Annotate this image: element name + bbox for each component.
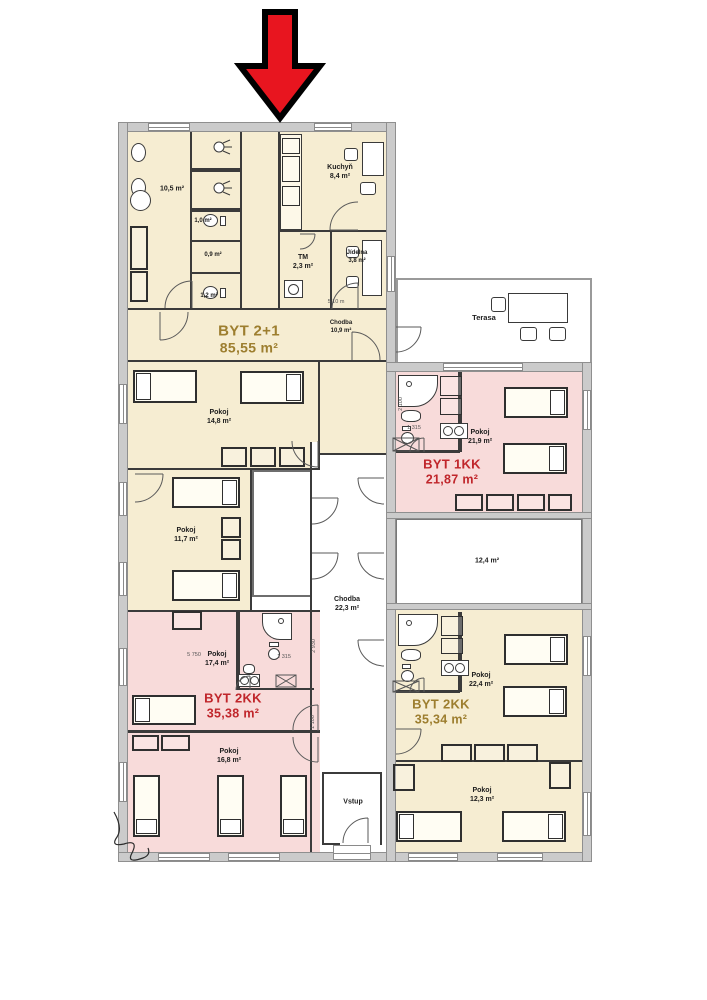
burner-icon: [443, 426, 453, 436]
room-label-tm: TM2,3 m²: [293, 253, 313, 271]
shower-drain-icon: [406, 381, 412, 387]
dimension-label: 1 315: [407, 425, 421, 431]
toilet-tank-icon: [269, 642, 279, 647]
chair-icon: [520, 327, 537, 341]
burner-icon: [455, 663, 465, 673]
window-icon: [408, 853, 458, 861]
bed-icon: [132, 695, 196, 725]
dimension-label: 1 315: [277, 654, 291, 660]
sink-icon: [131, 143, 146, 162]
wardrobe-icon: [507, 744, 538, 762]
room-label-jidelna: Jídelna3,8 m²: [347, 250, 368, 266]
window-icon: [119, 384, 127, 424]
room-label-kuchyn: Kuchyň8,4 m²: [327, 163, 353, 181]
wardrobe-icon: [517, 494, 545, 511]
room-label-terasa: Terasa: [472, 313, 496, 323]
room-label-sat09: 0,9 m²: [204, 252, 221, 260]
shower-drain-icon: [406, 620, 412, 626]
room-label-pokoj174: Pokoj17,4 m²: [205, 650, 229, 668]
terrace-table-icon: [508, 293, 568, 323]
toilet-icon: [401, 670, 414, 682]
room-label-pokoj148: Pokoj14,8 m²: [207, 408, 231, 426]
room-label-pokoj168: Pokoj16,8 m²: [217, 747, 241, 765]
bed-icon: [504, 634, 568, 665]
bed-icon: [217, 775, 244, 837]
bed-icon: [240, 371, 304, 404]
window-icon: [387, 256, 395, 292]
sink-icon: [401, 649, 421, 661]
chair-icon: [360, 182, 376, 195]
apartment-label-byt1kk: BYT 1KK21,87 m²: [423, 457, 481, 486]
wardrobe-icon: [221, 517, 241, 538]
wardrobe-icon: [221, 539, 241, 560]
bed-icon: [396, 811, 462, 842]
entrance-door-icon: [333, 845, 371, 860]
window-icon: [583, 792, 591, 836]
bed-icon: [503, 686, 567, 717]
bed-icon: [172, 477, 240, 508]
cabinet-icon: [130, 271, 148, 302]
window-icon: [119, 762, 127, 802]
red-arrow-icon: [232, 8, 332, 126]
appliance-icon: [282, 138, 300, 154]
dimension-label: 2 100: [398, 397, 404, 411]
chair-icon: [491, 297, 506, 312]
bed-icon: [504, 387, 568, 418]
sink-icon: [243, 664, 255, 674]
dimension-label: 5,10 m: [328, 299, 345, 305]
window-icon: [228, 853, 280, 861]
dimension-label: 5 750: [187, 652, 201, 658]
appliance-icon: [282, 156, 300, 182]
room-label-pokoj224: Pokoj22,4 m²: [469, 671, 493, 689]
wardrobe-icon: [132, 735, 159, 751]
bed-icon: [502, 811, 566, 842]
shower-drain-icon: [278, 618, 284, 624]
closet-block-floor: [320, 362, 386, 453]
vstup-floor: [322, 772, 382, 845]
wall-center: [386, 122, 396, 862]
wardrobe-icon: [279, 447, 305, 467]
dimension-label: 1 100: [310, 715, 316, 729]
room-label-vstup: Vstup: [343, 797, 362, 806]
bed-icon: [503, 443, 567, 474]
basin-icon: [240, 676, 249, 685]
appliance-icon: [441, 638, 463, 654]
wardrobe-icon: [474, 744, 505, 762]
window-icon: [583, 636, 591, 676]
wall-rightwing-right: [582, 362, 592, 862]
window-icon: [497, 853, 543, 861]
window-icon: [443, 363, 523, 371]
sink-icon: [401, 410, 421, 422]
bed-icon: [133, 775, 160, 837]
toilet-tank-icon: [402, 664, 411, 669]
burner-icon: [454, 426, 464, 436]
window-icon: [119, 562, 127, 596]
room-label-bath105: 10,5 m²: [160, 184, 184, 193]
bed-icon: [133, 370, 197, 403]
apartment-label-byt21: BYT 2+185,55 m²: [218, 322, 280, 355]
appliance-icon: [440, 376, 462, 396]
dining-table-icon: [362, 240, 382, 296]
window-icon: [148, 123, 190, 131]
wardrobe-icon: [486, 494, 514, 511]
closet-icon: [393, 764, 415, 791]
void-room-floor: [252, 470, 310, 597]
room-label-pokoj123: Pokoj12,3 m²: [470, 786, 494, 804]
wardrobe-icon: [455, 494, 483, 511]
appliance-icon: [440, 398, 462, 415]
toilet-icon: [401, 432, 414, 444]
dimension-label: 2 930: [311, 639, 317, 653]
apartment-label-byt2kk-left: BYT 2KK35,38 m²: [204, 691, 262, 720]
window-icon: [119, 482, 127, 516]
chair-icon: [346, 276, 359, 288]
closet-icon: [549, 762, 571, 789]
bed-icon: [172, 570, 240, 601]
room-label-pokoj117: Pokoj11,7 m²: [174, 526, 198, 544]
floor-plan-canvas: 10,5 m² 1,0 m² 0,9 m² 1,2 m² Kuchyň8,4 m…: [0, 0, 707, 1000]
room-label-pokoj219: Pokoj21,9 m²: [468, 428, 492, 446]
window-icon: [158, 853, 210, 861]
appliance-icon: [441, 616, 463, 636]
chair-icon: [549, 327, 566, 341]
wardrobe-icon: [172, 611, 202, 630]
appliance-icon: [282, 186, 300, 206]
chair-icon: [344, 148, 358, 161]
washer-door-icon: [288, 284, 299, 295]
wardrobe-icon: [441, 744, 472, 762]
apartment-label-byt2kk-right: BYT 2KK35,34 m²: [412, 697, 470, 726]
window-icon: [583, 390, 591, 430]
room-label-wc12: 1,2 m²: [200, 293, 217, 301]
room-label-chodba-byt: Chodba10,9 m²: [330, 320, 352, 336]
toilet-tank-icon: [220, 288, 226, 298]
wardrobe-icon: [161, 735, 190, 751]
room-label-chodba-main: Chodba22,3 m²: [334, 595, 360, 613]
kitchen-table-icon: [362, 142, 384, 176]
round-table-icon: [130, 190, 151, 211]
bed-icon: [280, 775, 307, 837]
burner-icon: [444, 663, 454, 673]
basin-icon: [250, 676, 259, 685]
wardrobe-icon: [221, 447, 247, 467]
wardrobe-icon: [548, 494, 572, 511]
room-label-124: 12,4 m²: [475, 556, 499, 565]
window-icon: [119, 648, 127, 686]
cabinet-icon: [130, 226, 148, 270]
wardrobe-icon: [250, 447, 276, 467]
room-label-wc10: 1,0 m²: [194, 218, 211, 226]
toilet-tank-icon: [220, 216, 226, 226]
